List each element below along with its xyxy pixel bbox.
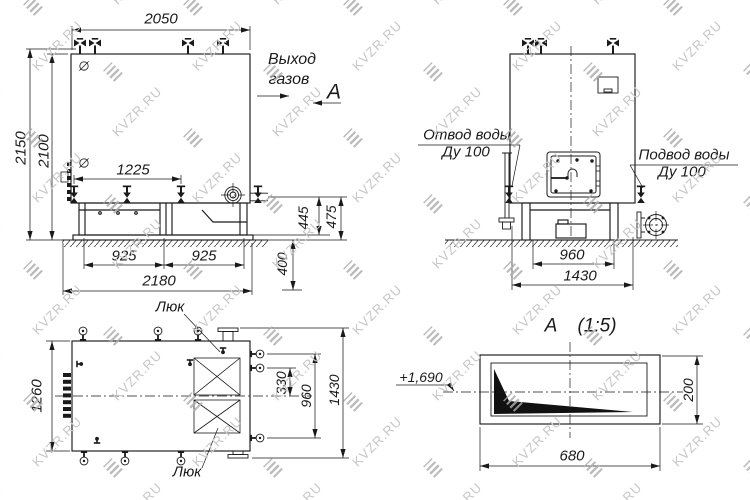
front-view (61, 38, 268, 247)
side-base (522, 203, 618, 240)
water-inlet-valve-icon (637, 186, 645, 204)
drain-valve-icon (123, 186, 131, 204)
dim-2100: 2100 (37, 134, 52, 167)
valve-plan-icon (250, 434, 264, 442)
drain-valve-icon (177, 186, 185, 204)
safety-valve-icon (607, 38, 619, 54)
dim-200: 200 (681, 378, 695, 401)
door-lock-icon (568, 169, 577, 177)
dim-925-left: 925 (111, 249, 136, 264)
side-bracket (61, 172, 68, 182)
elevation-arrow (450, 385, 454, 391)
section-title-letter: А (545, 317, 558, 336)
fitting-icon (187, 359, 193, 366)
elevation-mark: +1,690 (399, 370, 442, 384)
valve-plan-icon (79, 327, 87, 341)
flange-plan-top (218, 328, 238, 341)
dim-445: 445 (296, 206, 310, 229)
safety-valve-icon (535, 38, 547, 54)
flange-plan-bottom (228, 451, 248, 458)
gas-outlet-label-line2: газов (269, 72, 310, 88)
valve-plan-icon (154, 327, 162, 341)
fitting-icon (76, 361, 83, 367)
dim-2050: 2050 (144, 12, 177, 27)
valve-plan-icon (80, 451, 88, 465)
valve-plan-icon (121, 451, 129, 465)
water-outlet-pipe (499, 153, 514, 229)
section-title-scale: (1:5) (577, 317, 616, 336)
nameplate (598, 77, 618, 93)
ground-hatch (62, 241, 268, 248)
water-outlet-valve-icon (505, 186, 513, 204)
vent-icon (79, 158, 88, 167)
side-ladder (67, 162, 71, 201)
dim-960-side: 960 (559, 248, 584, 263)
fitting-icon (220, 347, 226, 354)
dim-680: 680 (559, 449, 584, 464)
fitting-icon (94, 437, 100, 444)
water-outlet-label-line2: Ду 100 (442, 145, 489, 160)
hatch-opening-top (194, 358, 240, 395)
water-inlet-label-line1: Подвод воды (639, 148, 730, 163)
drawing-canvas: 2050 2150 2100 1225 925 925 2180 445 475… (0, 0, 750, 500)
dim-925-right: 925 (191, 249, 216, 264)
water-inlet-label-line2: Ду 100 (658, 165, 705, 180)
section-letter: А (327, 82, 341, 103)
vent-icon (79, 61, 88, 70)
dim-1260: 1260 (30, 379, 45, 412)
hatch-opening-bottom (194, 400, 240, 433)
safety-valve-icon (89, 38, 101, 54)
valve-plan-icon (250, 350, 264, 358)
side-ladder (63, 373, 71, 418)
hatch-label-top: Люк (156, 300, 185, 315)
dim-1430-side: 1430 (563, 269, 596, 284)
gas-outlet-label-line1: Выход (268, 52, 316, 68)
safety-valve-icon (74, 38, 86, 54)
safety-valve-icon (182, 38, 194, 54)
furnace-door (547, 152, 600, 197)
dim-2180: 2180 (142, 274, 175, 289)
hatch-label-bottom: Люк (173, 465, 202, 480)
safety-valve-icon (217, 38, 229, 54)
dim-475: 475 (324, 205, 338, 228)
valve-plan-icon (250, 364, 264, 372)
grate-profile (494, 369, 633, 414)
water-outlet-label-line1: Отвод воды (423, 128, 511, 143)
support-base (73, 203, 253, 240)
dim-330: 330 (274, 371, 288, 394)
dim-1225: 1225 (116, 163, 149, 178)
safety-valve-icon (522, 38, 534, 54)
dim-960-top: 960 (299, 384, 313, 407)
dim-400: 400 (275, 252, 289, 275)
dim-1430-top: 1430 (327, 374, 341, 405)
dim-2150: 2150 (14, 131, 29, 164)
